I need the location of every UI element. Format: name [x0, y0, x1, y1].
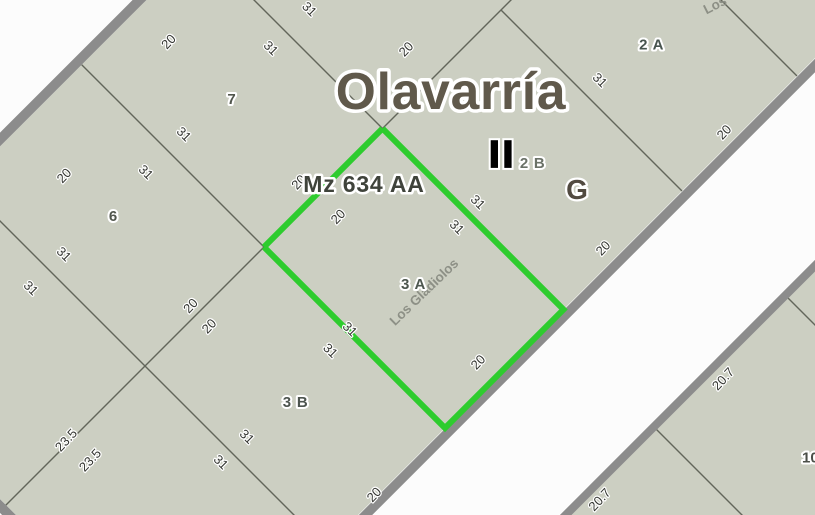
- svg-text:3 A: 3 A: [401, 276, 426, 293]
- svg-text:7: 7: [227, 91, 236, 108]
- svg-text:10: 10: [802, 450, 815, 467]
- svg-text:G: G: [566, 174, 588, 205]
- svg-text:3 B: 3 B: [283, 394, 309, 411]
- svg-text:2 B: 2 B: [520, 155, 546, 172]
- svg-text:6: 6: [109, 208, 118, 225]
- svg-text:2 A: 2 A: [639, 37, 664, 54]
- svg-text:Mz 634 AA: Mz 634 AA: [303, 171, 424, 197]
- svg-text:Olavarría: Olavarría: [336, 62, 567, 120]
